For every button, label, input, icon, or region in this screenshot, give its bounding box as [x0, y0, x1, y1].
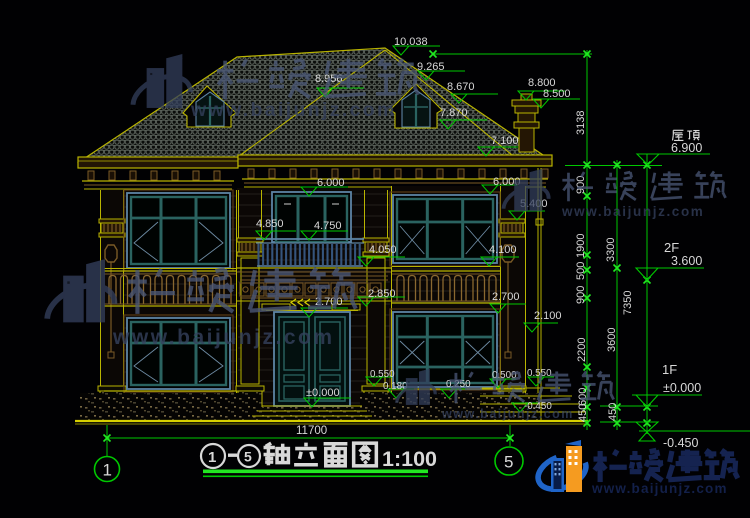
svg-text:8.500: 8.500: [543, 88, 571, 100]
svg-text:www.baijunjz.com: www.baijunjz.com: [190, 99, 397, 121]
svg-text:2.850: 2.850: [368, 288, 396, 300]
svg-text:www.baijunjz.com: www.baijunjz.com: [591, 481, 728, 496]
svg-text:4.100: 4.100: [489, 244, 517, 256]
svg-text:4.850: 4.850: [256, 218, 284, 230]
svg-text:5: 5: [244, 449, 252, 465]
svg-text:900: 900: [575, 286, 587, 304]
svg-text:6.000: 6.000: [317, 177, 345, 189]
svg-text:500: 500: [575, 262, 587, 280]
svg-text:3600: 3600: [606, 328, 618, 352]
svg-text:2.700: 2.700: [492, 291, 520, 303]
svg-text:3138: 3138: [575, 111, 587, 135]
svg-text:7.100: 7.100: [491, 135, 519, 147]
svg-text:7350: 7350: [622, 291, 634, 315]
svg-text:±0.000: ±0.000: [663, 381, 701, 395]
svg-text:1F: 1F: [662, 362, 677, 377]
svg-text:4.050: 4.050: [369, 244, 397, 256]
svg-text:www.baijunjz.com: www.baijunjz.com: [561, 204, 704, 219]
svg-text:900: 900: [575, 176, 587, 194]
svg-text:8.670: 8.670: [447, 81, 475, 93]
svg-text:3300: 3300: [605, 238, 617, 262]
svg-text:1:100: 1:100: [382, 447, 437, 471]
svg-text:9.265: 9.265: [417, 61, 445, 73]
svg-text:450: 450: [577, 404, 589, 422]
svg-text:4.750: 4.750: [314, 220, 342, 232]
svg-text:7.870: 7.870: [440, 107, 468, 119]
svg-text:5: 5: [504, 453, 513, 472]
svg-text:11700: 11700: [296, 425, 327, 437]
svg-text:www.baijunjz.com: www.baijunjz.com: [112, 326, 335, 349]
svg-text:1: 1: [208, 449, 216, 466]
svg-text:2200: 2200: [576, 338, 588, 362]
svg-text:2.100: 2.100: [534, 310, 562, 322]
svg-text:www.baijunjz.com: www.baijunjz.com: [441, 407, 574, 421]
svg-text:±0.000: ±0.000: [306, 387, 340, 399]
svg-text:10.038: 10.038: [394, 36, 428, 48]
svg-text:6.900: 6.900: [671, 141, 702, 155]
svg-text:1900: 1900: [575, 234, 587, 258]
svg-text:-0.450: -0.450: [663, 436, 698, 450]
svg-text:2F: 2F: [664, 240, 679, 255]
svg-text:450: 450: [607, 403, 619, 421]
svg-text:3.600: 3.600: [671, 254, 702, 268]
svg-text:0.550: 0.550: [370, 369, 395, 380]
svg-text:1: 1: [103, 461, 112, 480]
